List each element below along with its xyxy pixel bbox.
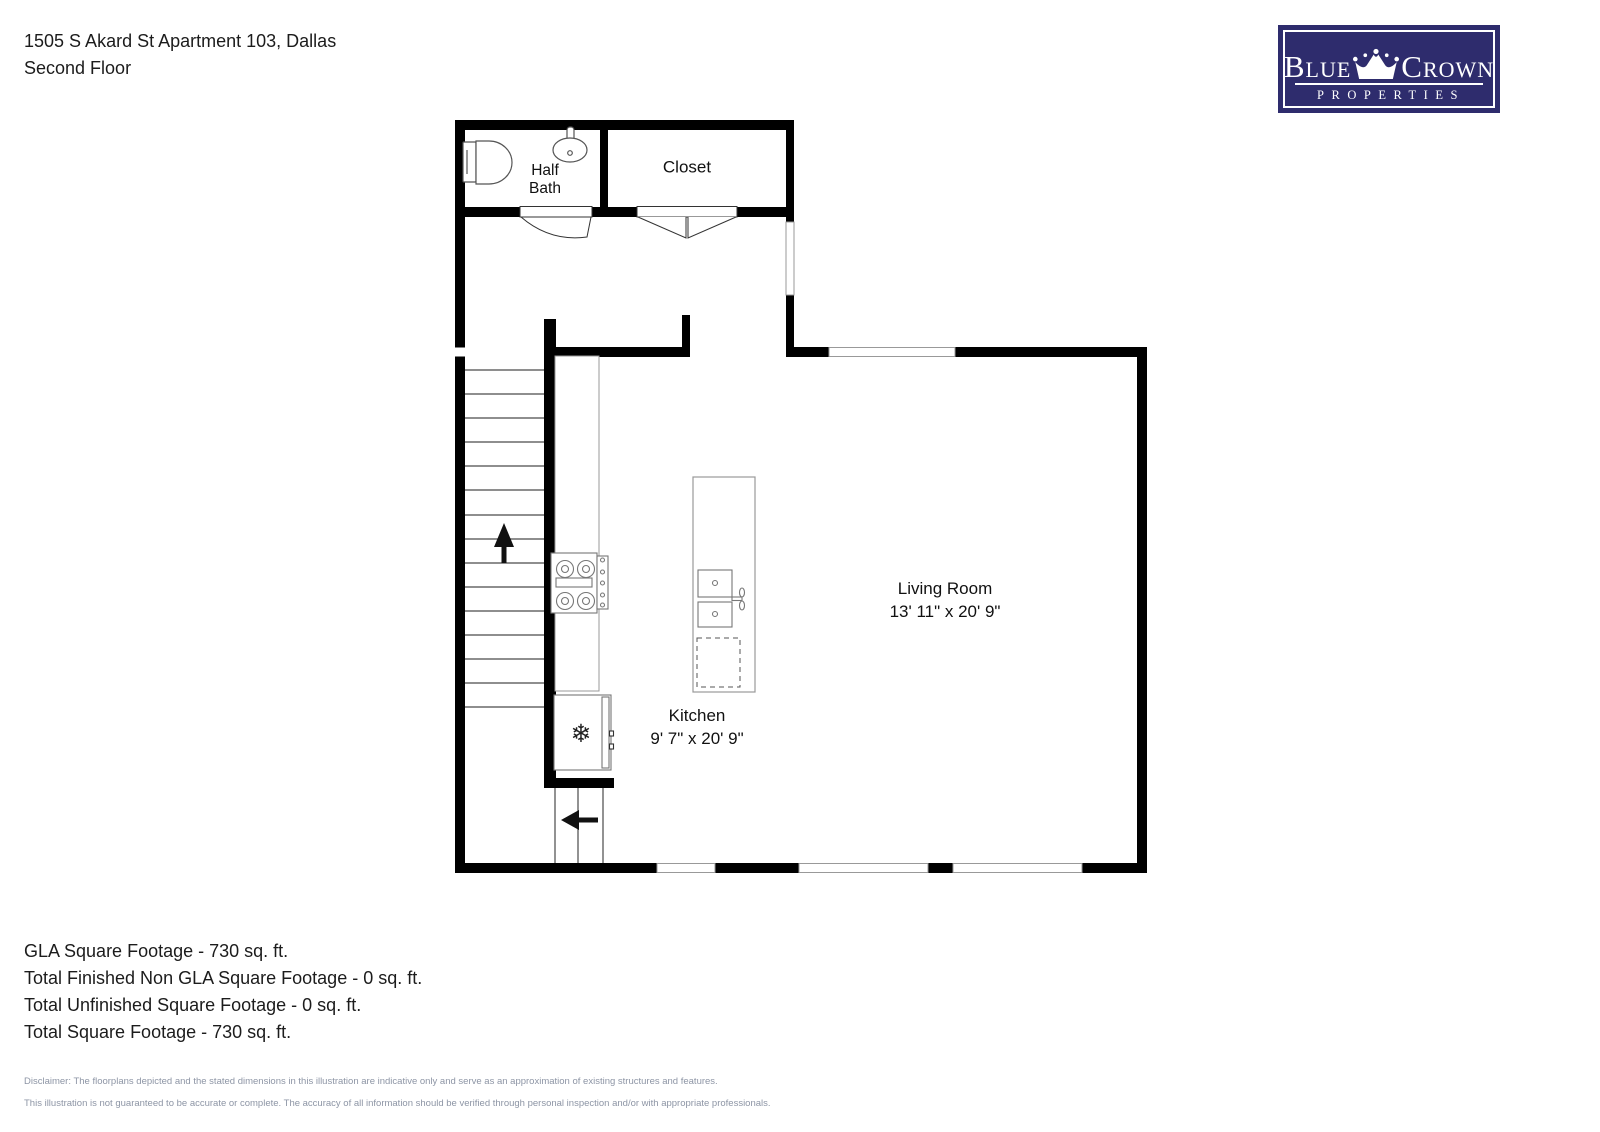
disclaimer-line-2: This illustration is not guaranteed to b… [24,1098,771,1109]
logo-brand-row: Blue Crown [1284,46,1494,82]
closet-label: Closet [663,156,711,179]
stairs-up-arrow-icon [494,523,514,563]
dishwasher-icon [697,638,740,687]
door-closet [637,207,737,239]
crown-icon [1353,46,1399,86]
toilet-icon [463,141,512,184]
bath-sink-icon [553,127,587,162]
window [953,864,1082,873]
logo-divider-rule [1295,83,1483,85]
logo-word-blue: Blue [1284,51,1351,82]
non-gla-square-footage: Total Finished Non GLA Square Footage - … [24,968,422,989]
door-half-bath [520,207,592,238]
logo-tagline: PROPERTIES [1313,88,1465,103]
kitchen-dimensions: 9' 7" x 20' 9" [650,727,743,750]
window [799,864,928,873]
logo-inner-frame: Blue Crown PROPERTIES [1283,30,1495,108]
address-title: 1505 S Akard St Apartment 103, Dallas [24,31,336,52]
window [829,348,955,357]
living-room-label: Living Room 13' 11" x 20' 9" [890,577,1001,623]
floorplan-page: 1505 S Akard St Apartment 103, Dallas Se… [0,0,1600,1132]
gla-square-footage: GLA Square Footage - 730 sq. ft. [24,941,288,962]
window [786,222,794,295]
floorplan-drawing: ❄ [440,110,1160,885]
kitchen-label: Kitchen 9' 7" x 20' 9" [650,704,743,750]
disclaimer-line-1: Disclaimer: The floorplans depicted and … [24,1076,718,1087]
stove-icon [551,553,608,613]
snowflake-icon: ❄ [571,720,592,748]
wall-gap [455,348,465,357]
living-room-dimensions: 13' 11" x 20' 9" [890,600,1001,623]
unfinished-square-footage: Total Unfinished Square Footage - 0 sq. … [24,995,361,1016]
kitchen-counter [555,356,599,691]
half-bath-label: Half Bath [529,162,561,198]
floor-subtitle: Second Floor [24,58,131,79]
entry-arrow-icon [561,810,598,830]
blue-crown-properties-logo: Blue Crown PROPERTIES [1278,25,1500,113]
total-square-footage: Total Square Footage - 730 sq. ft. [24,1022,291,1043]
logo-word-crown: Crown [1401,51,1494,82]
window [657,864,715,873]
